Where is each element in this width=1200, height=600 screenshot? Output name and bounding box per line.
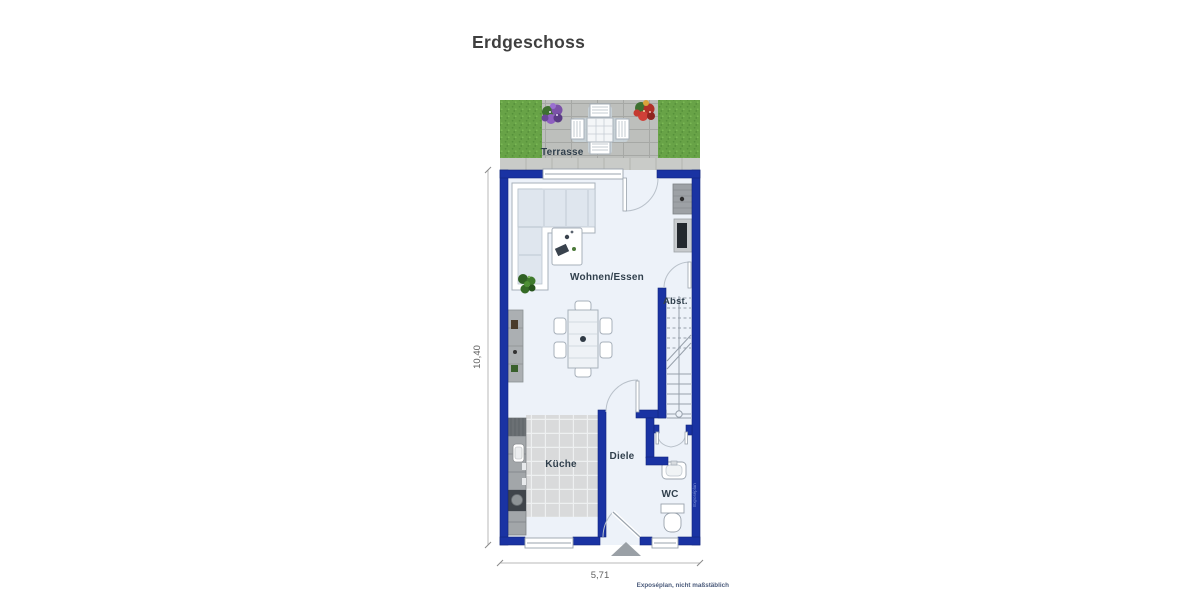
room-label-wc: WC	[661, 489, 678, 500]
wc-toilet	[661, 504, 684, 532]
terrace-table	[587, 118, 613, 142]
dimension-height: 10,40	[472, 167, 491, 548]
coffee-table	[552, 228, 582, 265]
floorplan-page: Erdgeschoss	[0, 0, 1200, 600]
dimension-width: 5,71	[497, 560, 703, 581]
wall-stair-left	[658, 288, 666, 418]
dimension-height-label: 10,40	[472, 345, 483, 369]
stair-newel	[676, 411, 682, 417]
room-label-terrasse: Terrasse	[541, 147, 584, 158]
wall-wc-top	[646, 457, 668, 465]
grass-right	[658, 100, 700, 158]
tv	[677, 223, 687, 248]
room-label-kueche: Küche	[545, 459, 577, 470]
grass-left	[500, 100, 542, 158]
kitchen-counter	[508, 418, 526, 535]
sideboard	[508, 310, 523, 382]
room-label-wohnen: Wohnen/Essen	[570, 272, 644, 283]
wall-kueche-diele	[598, 410, 606, 537]
room-label-diele: Diele	[610, 451, 635, 462]
floorplan-drawing: Erdgeschoss	[0, 0, 1200, 600]
page-title: Erdgeschoss	[472, 32, 585, 52]
terrace-walkway-strip	[500, 158, 700, 170]
terrace: Terrasse	[500, 100, 700, 170]
wall-diele-lobby	[646, 418, 654, 458]
room-label-abst: Abst.	[663, 296, 688, 307]
footnote: Exposéplan, nicht maßstäblich	[637, 582, 730, 589]
wall-watermark: Exposéplan	[692, 483, 697, 507]
dimension-width-label: 5,71	[591, 570, 610, 581]
